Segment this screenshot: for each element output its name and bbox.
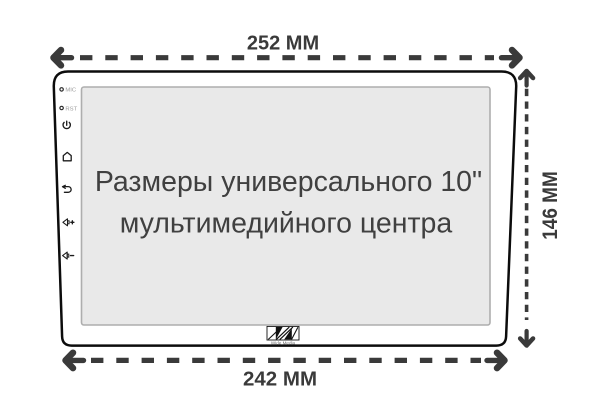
svg-text:252 ММ: 252 ММ — [247, 32, 319, 54]
svg-text:146 ММ: 146 ММ — [538, 171, 562, 240]
svg-text:RST: RST — [65, 106, 77, 112]
svg-text:MIC: MIC — [65, 88, 77, 94]
svg-text:Размеры универсального 10": Размеры универсального 10" — [95, 166, 482, 198]
svg-text:Wide Media: Wide Media — [271, 340, 296, 345]
svg-text:мультимедийного центра: мультимедийного центра — [120, 207, 453, 239]
svg-text:242 ММ: 242 ММ — [243, 367, 317, 390]
